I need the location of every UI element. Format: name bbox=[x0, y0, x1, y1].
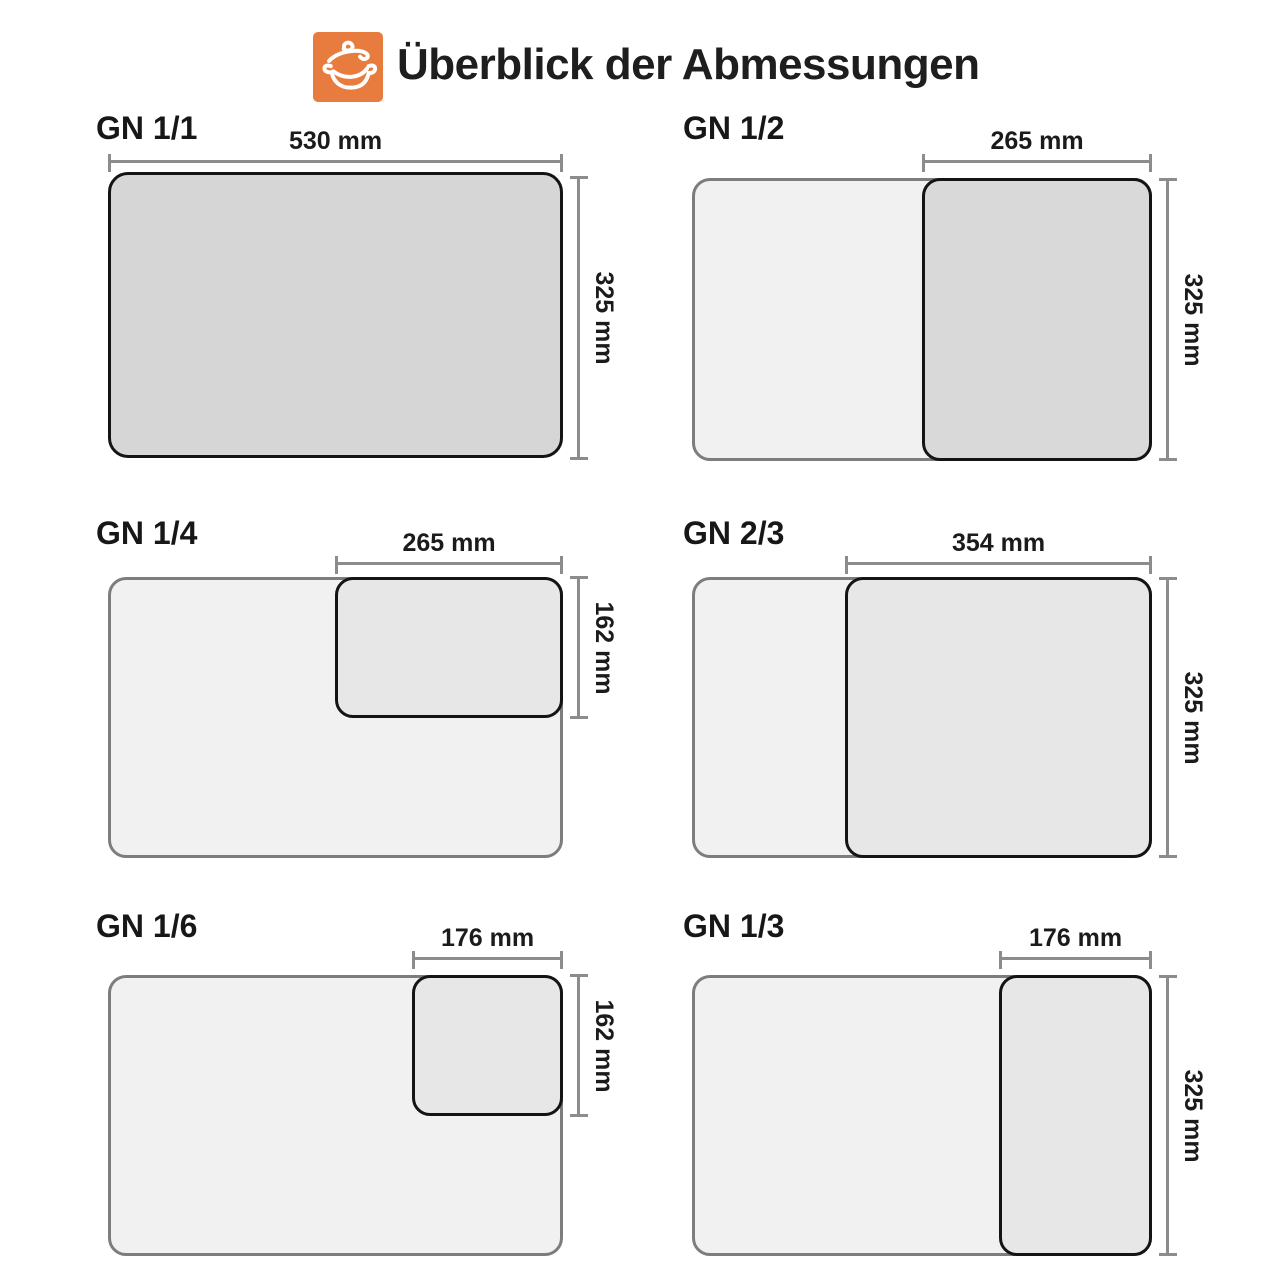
height-dimension-gn-1-6: 162 mm bbox=[577, 974, 580, 1117]
width-dimension-gn-1-2: 265 mm bbox=[922, 160, 1152, 163]
panel-label-gn-1-2: GN 1/2 bbox=[683, 110, 784, 147]
width-dimension-label: 176 mm bbox=[1029, 924, 1122, 953]
panel-label-gn-1-3: GN 1/3 bbox=[683, 908, 784, 945]
panel-label-gn-1-6: GN 1/6 bbox=[96, 908, 197, 945]
width-dimension-gn-1-4: 265 mm bbox=[335, 562, 563, 565]
height-dimension-gn-2-3: 325 mm bbox=[1166, 577, 1169, 858]
height-dimension-label: 325 mm bbox=[1178, 671, 1207, 764]
height-dimension-label: 325 mm bbox=[589, 271, 618, 364]
width-dimension-gn-1-3: 176 mm bbox=[999, 957, 1152, 960]
height-dimension-label: 162 mm bbox=[589, 999, 618, 1092]
pan-gn-1-6 bbox=[412, 975, 563, 1116]
pan-gn-1-4 bbox=[335, 577, 563, 718]
brand-logo bbox=[313, 32, 383, 102]
height-dimension-gn-1-4: 162 mm bbox=[577, 576, 580, 719]
width-dimension-gn-2-3: 354 mm bbox=[845, 562, 1152, 565]
pan-gn-1-2 bbox=[922, 178, 1152, 461]
width-dimension-label: 530 mm bbox=[289, 127, 382, 156]
dimensions-overview-diagram: Überblick der Abmessungen GN 1/1 530 mm … bbox=[0, 0, 1280, 1280]
height-dimension-gn-1-1: 325 mm bbox=[577, 176, 580, 460]
height-dimension-label: 325 mm bbox=[1178, 273, 1207, 366]
panel-label-gn-1-1: GN 1/1 bbox=[96, 110, 197, 147]
width-dimension-gn-1-1: 530 mm bbox=[108, 160, 563, 163]
width-dimension-label: 176 mm bbox=[441, 924, 534, 953]
height-dimension-label: 162 mm bbox=[589, 601, 618, 694]
pan-gn-1-1 bbox=[108, 172, 563, 458]
height-dimension-gn-1-2: 325 mm bbox=[1166, 178, 1169, 461]
pan-gn-1-3 bbox=[999, 975, 1152, 1256]
panel-label-gn-2-3: GN 2/3 bbox=[683, 515, 784, 552]
width-dimension-label: 265 mm bbox=[990, 127, 1083, 156]
width-dimension-label: 265 mm bbox=[402, 529, 495, 558]
width-dimension-gn-1-6: 176 mm bbox=[412, 957, 563, 960]
height-dimension-gn-1-3: 325 mm bbox=[1166, 975, 1169, 1256]
pot-icon bbox=[317, 36, 379, 98]
panel-label-gn-1-4: GN 1/4 bbox=[96, 515, 197, 552]
pan-gn-2-3 bbox=[845, 577, 1152, 858]
height-dimension-label: 325 mm bbox=[1178, 1069, 1207, 1162]
width-dimension-label: 354 mm bbox=[952, 529, 1045, 558]
page-title: Überblick der Abmessungen bbox=[397, 40, 979, 90]
